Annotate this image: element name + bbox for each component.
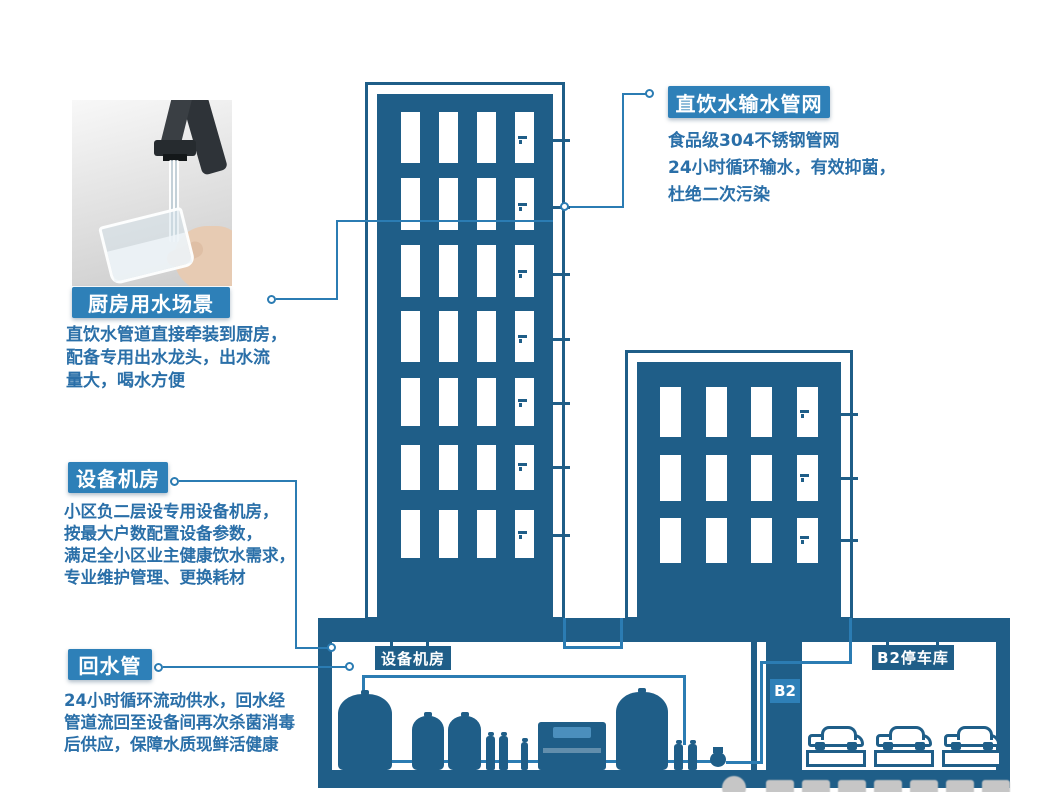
storage-tank [616, 692, 668, 770]
window [477, 245, 496, 297]
floor-branch-stub [534, 402, 570, 405]
kitchen-connector [276, 298, 338, 300]
machine-panel [553, 727, 591, 738]
window [751, 455, 772, 501]
parking-stall [874, 750, 934, 767]
return-pipe-connector [163, 666, 349, 668]
return-route-pipe [849, 618, 852, 664]
tap-icon [518, 268, 530, 278]
tap-icon [518, 461, 530, 471]
car [876, 734, 932, 747]
return-pipe-badge: 回水管 [68, 649, 152, 680]
tap-icon [518, 529, 530, 539]
return-route-pipe [760, 661, 852, 664]
room-header-pipe [683, 675, 686, 745]
window [439, 378, 458, 426]
machine-strip [543, 748, 601, 753]
watermark-text-fragment [982, 780, 1010, 792]
connector-dot [154, 663, 163, 672]
tap-icon [518, 333, 530, 343]
return-route-pipe [726, 761, 763, 764]
watermark-text-fragment [946, 780, 974, 792]
window [706, 518, 727, 563]
tap-icon [800, 408, 812, 418]
window [477, 112, 496, 163]
window [439, 112, 458, 163]
supply-network-badge: 直饮水输水管网 [668, 86, 830, 118]
connector-dot [170, 477, 179, 486]
parking-stall [806, 750, 866, 767]
window [401, 112, 420, 163]
filter-cylinder [688, 744, 697, 770]
riser-down-pipe [563, 646, 623, 649]
elevator-b2-badge: B2 [770, 679, 800, 703]
room-header-pipe [362, 675, 686, 678]
window [660, 387, 681, 437]
window [439, 311, 458, 362]
parking-garage-sign: B2停车库 [872, 645, 954, 670]
floor-branch-stub [534, 466, 570, 469]
car [808, 734, 864, 747]
kitchen-connector [336, 220, 338, 300]
window [751, 518, 772, 563]
equipment-room-connector [295, 480, 297, 649]
connector-dot [560, 202, 569, 211]
window [401, 178, 420, 230]
kitchen-scene-desc: 直饮水管道直接牵装到厨房， 配备专用出水龙头，出水流 量大，喝水方便 [66, 324, 287, 393]
riser-down-pipe [620, 618, 623, 649]
infographic-canvas: 厨房用水场景 直饮水管道直接牵装到厨房， 配备专用出水龙头，出水流 量大，喝水方… [0, 0, 1058, 792]
kitchen-photo [72, 100, 232, 286]
kitchen-scene-badge: 厨房用水场景 [72, 287, 230, 318]
tap-icon [518, 134, 530, 144]
window [439, 245, 458, 297]
return-pipe-desc: 24小时循环流动供水，回水经 管道流回至设备间再次杀菌消毒 后供应，保障水质现鲜… [64, 690, 295, 756]
watermark-text-fragment [766, 780, 794, 792]
connector-dot [645, 89, 654, 98]
window [477, 445, 496, 490]
basement-floor-slab [318, 770, 1010, 788]
floor-branch-stub [818, 413, 858, 416]
window [751, 387, 772, 437]
window [439, 178, 458, 230]
window [401, 378, 420, 426]
storage-tank [412, 716, 444, 770]
window [477, 378, 496, 426]
supply-connector [570, 206, 624, 208]
watermark-text-fragment [802, 780, 830, 792]
return-route-pipe [760, 661, 763, 764]
parking-stall [942, 750, 1002, 767]
equipment-room-connector [179, 480, 297, 482]
watermark-text-fragment [874, 780, 902, 792]
tap-icon [800, 534, 812, 544]
equipment-room-right-wall [751, 642, 757, 770]
filter-cylinder [486, 736, 495, 770]
floor-branch-stub [534, 139, 570, 142]
filter-cylinder [674, 744, 683, 770]
window [477, 178, 496, 230]
watermark-text-fragment [838, 780, 866, 792]
filter-cylinder [521, 742, 528, 770]
window [401, 311, 420, 362]
floor-branch-stub [534, 273, 570, 276]
purifier-machine [538, 722, 606, 770]
tap-icon [518, 201, 530, 211]
window [660, 518, 681, 563]
window [706, 455, 727, 501]
car [944, 734, 1000, 747]
connector-dot [267, 295, 276, 304]
watermark-text-fragment [910, 780, 938, 792]
window [477, 510, 496, 558]
window [439, 445, 458, 490]
filter-cylinder [499, 736, 508, 770]
window [706, 387, 727, 437]
pump [710, 752, 726, 767]
equipment-room-connector [295, 647, 331, 649]
supply-network-desc: 食品级304不锈钢管网 24小时循环输水，有效抑菌， 杜绝二次污染 [668, 128, 896, 209]
tap-icon [518, 397, 530, 407]
tap-icon [800, 472, 812, 482]
connector-dot [327, 643, 336, 652]
window [401, 245, 420, 297]
storage-tank [338, 694, 392, 770]
riser-down-pipe [563, 618, 566, 649]
window [477, 311, 496, 362]
window [401, 510, 420, 558]
window [401, 445, 420, 490]
equipment-room-desc: 小区负二层设专用设备机房， 按最大户数配置设备参数， 满足全小区业主健康饮水需求… [64, 501, 295, 589]
equipment-room-badge: 设备机房 [68, 462, 168, 493]
floor-branch-stub [818, 477, 858, 480]
connector-dot [345, 662, 354, 671]
floor-branch-stub [818, 539, 858, 542]
storage-tank [448, 716, 481, 770]
floor-branch-stub [534, 534, 570, 537]
ground-slab [318, 618, 1010, 642]
supply-connector [622, 93, 624, 208]
equipment-room-sign: 设备机房 [375, 646, 451, 670]
window [660, 455, 681, 501]
window [439, 510, 458, 558]
kitchen-branch-pipe [336, 220, 553, 222]
floor-branch-stub [534, 338, 570, 341]
